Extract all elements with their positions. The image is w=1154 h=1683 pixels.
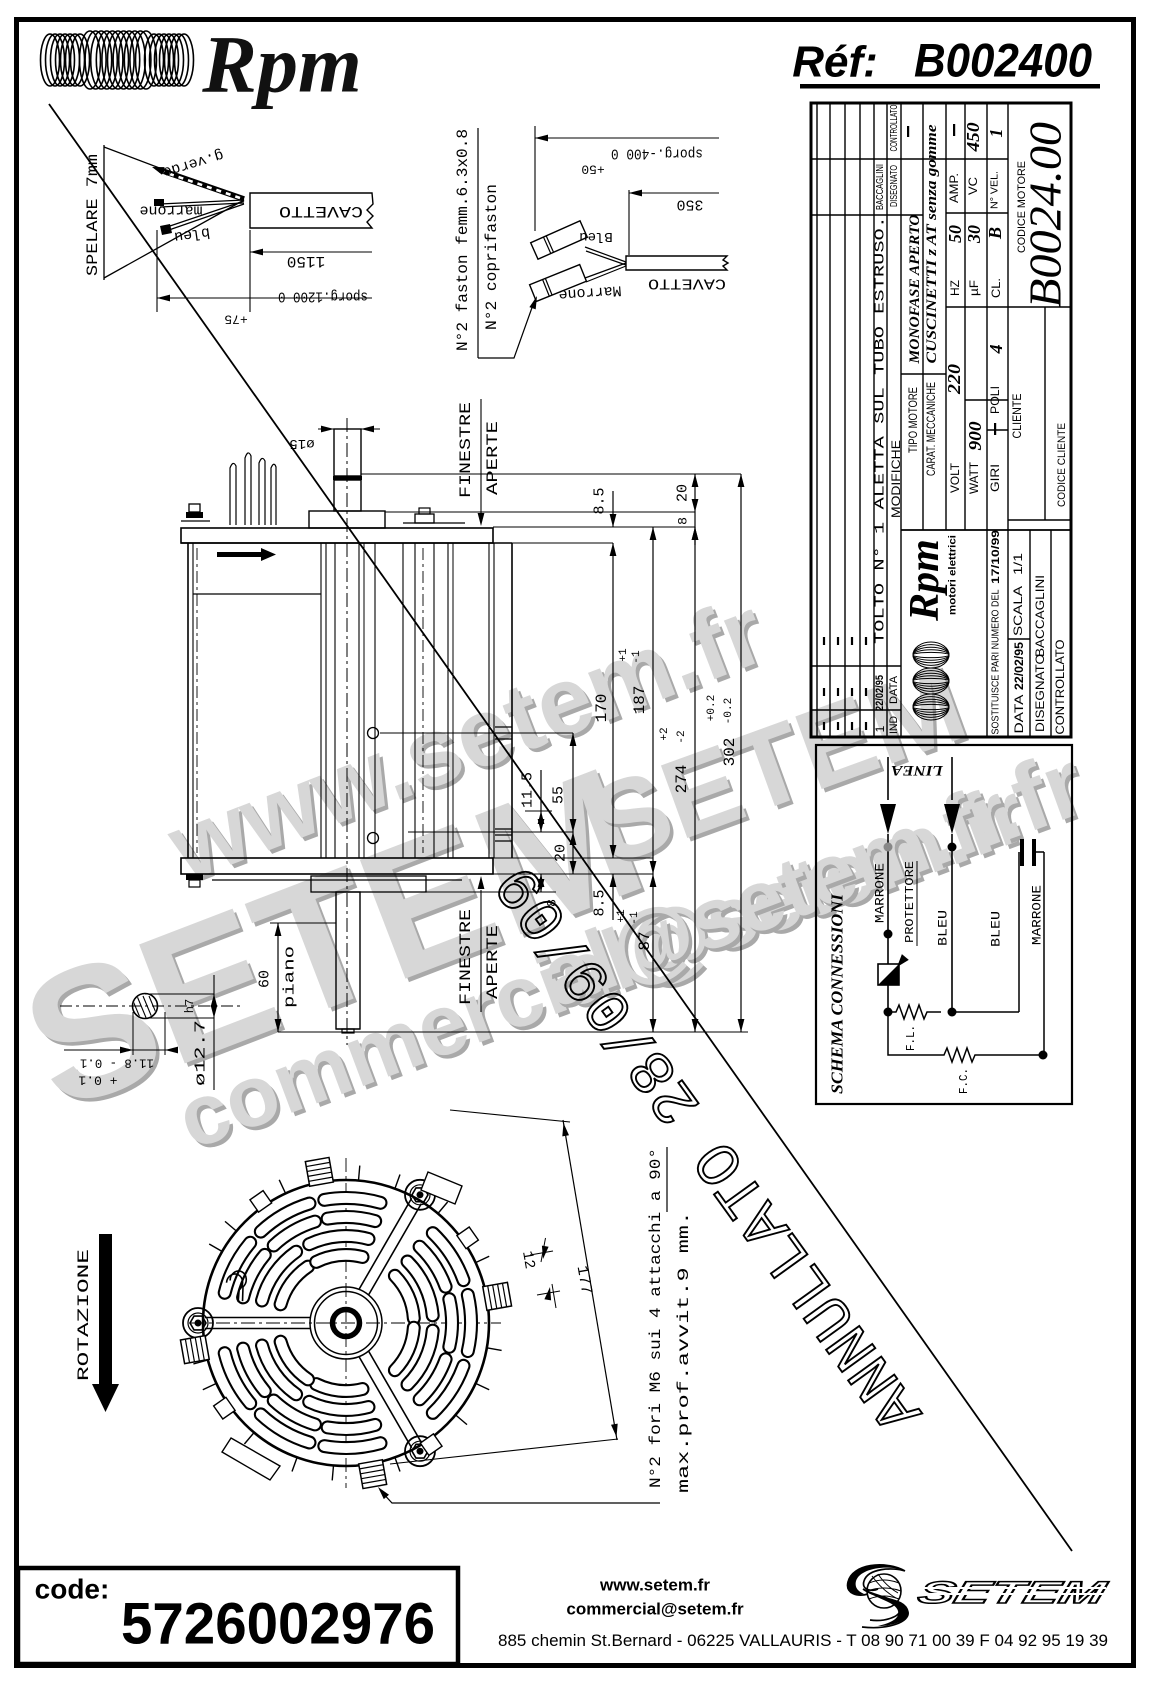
svg-text:+0.2: +0.2 — [706, 695, 718, 721]
svg-text:1150: 1150 — [287, 252, 325, 270]
svg-text:5726002976: 5726002976 — [121, 1592, 435, 1657]
svg-text:1/1: 1/1 — [1011, 553, 1025, 575]
svg-text:12: 12 — [518, 1250, 538, 1271]
svg-text:B: B — [985, 227, 1005, 240]
svg-text:POLI: POLI — [988, 386, 1002, 414]
svg-text:11.8 - 0.1: 11.8 - 0.1 — [80, 1056, 154, 1071]
svg-text:CAVETTO: CAVETTO — [648, 275, 726, 292]
svg-text:22/02/95: 22/02/95 — [1012, 642, 1026, 690]
svg-text:www.setem.fr: www.setem.fr — [599, 1576, 710, 1595]
svg-text:-0.2: -0.2 — [723, 698, 735, 724]
svg-text:11.5: 11.5 — [520, 772, 537, 808]
svg-text:N°2 coprifaston: N°2 coprifaston — [483, 184, 501, 330]
svg-text:302: 302 — [721, 738, 739, 767]
svg-text:VOLT: VOLT — [948, 462, 962, 493]
svg-text:DATA: DATA — [1012, 695, 1026, 734]
svg-text:N° VEL.: N° VEL. — [990, 171, 1001, 209]
svg-text:TIPO MOTORE: TIPO MOTORE — [906, 387, 920, 453]
svg-text:60: 60 — [257, 970, 274, 988]
svg-text:BLEU: BLEU — [936, 910, 951, 946]
svg-text:sporg.-400 0: sporg.-400 0 — [611, 145, 703, 162]
svg-text:SOSTITUISCE PARI NUMERO DEL: SOSTITUISCE PARI NUMERO DEL — [991, 589, 1002, 734]
svg-text:motori elettrici: motori elettrici — [948, 535, 959, 615]
svg-text:MONOFASE APERTO: MONOFASE APERTO — [907, 214, 923, 364]
svg-text:885 chemin St.Bernard - 0622: 885 chemin St.Bernard - 06225 VALLAURIS … — [498, 1632, 1108, 1650]
svg-text:274: 274 — [673, 765, 691, 794]
svg-text:BACCAGLINI: BACCAGLINI — [1033, 575, 1047, 657]
svg-text:ø15: ø15 — [289, 435, 314, 451]
svg-text:CLIENTE: CLIENTE — [1010, 394, 1024, 439]
svg-text:APERTE: APERTE — [484, 925, 502, 999]
svg-text:Réf:: Réf: — [792, 38, 878, 87]
svg-text:CL.: CL. — [989, 278, 1003, 298]
svg-text:+50: +50 — [581, 162, 604, 177]
svg-text:+1: +1 — [616, 909, 628, 923]
svg-text:MARRONE: MARRONE — [1030, 885, 1045, 945]
svg-text:CODICE CLIENTE: CODICE CLIENTE — [1056, 423, 1068, 507]
svg-text:450: 450 — [963, 123, 983, 153]
svg-text:IND: IND — [888, 716, 900, 734]
svg-text:1: 1 — [986, 129, 1006, 138]
svg-text:+2: +2 — [659, 727, 671, 740]
svg-text:DISEGNATO: DISEGNATO — [1033, 654, 1047, 732]
svg-text:-2: -2 — [676, 730, 688, 743]
svg-text:sporg.1200 0: sporg.1200 0 — [278, 288, 368, 305]
svg-text:BACCAGLINI: BACCAGLINI — [874, 164, 886, 210]
svg-text:FINESTRE: FINESTRE — [457, 909, 475, 1005]
svg-text:piano: piano — [282, 946, 299, 1008]
svg-text:ROTAZIONE: ROTAZIONE — [75, 1249, 93, 1381]
svg-text:20: 20 — [553, 844, 570, 862]
svg-text:code:: code: — [35, 1574, 110, 1605]
svg-text:ø12.7: ø12.7 — [193, 1020, 210, 1086]
svg-text:MARRONE: MARRONE — [873, 863, 888, 923]
svg-text:Bleu: Bleu — [579, 228, 613, 244]
svg-text:-1: -1 — [629, 911, 641, 925]
svg-text:50: 50 — [945, 225, 965, 243]
svg-text:SPELARE 7mm: SPELARE 7mm — [84, 154, 102, 276]
svg-text:BLEU: BLEU — [989, 911, 1004, 947]
svg-text:DISEGNATO: DISEGNATO — [888, 165, 900, 207]
svg-text:350: 350 — [676, 196, 703, 213]
svg-text:220: 220 — [944, 364, 964, 395]
svg-text:CAVETTO: CAVETTO — [279, 202, 363, 220]
svg-text:TOLTO N° 1 ALETTA SUL TUBO EST: TOLTO N° 1 ALETTA SUL TUBO ESTRUSO. — [874, 216, 889, 644]
svg-text:DATA: DATA — [888, 675, 900, 704]
svg-text:Rpm: Rpm — [902, 539, 948, 622]
svg-text:MODIFICHE: MODIFICHE — [889, 440, 903, 518]
svg-text:900: 900 — [965, 422, 985, 451]
svg-text:87: 87 — [636, 931, 654, 950]
svg-text:+ 0.1: + 0.1 — [78, 1073, 117, 1088]
svg-text:marrone: marrone — [139, 202, 202, 219]
svg-text:CONTROLLATO: CONTROLLATO — [1053, 640, 1067, 735]
svg-text:SCHEMA CONNESSIONI: SCHEMA CONNESSIONI — [828, 893, 847, 1094]
svg-text:B0024.00: B0024.00 — [1020, 122, 1071, 308]
svg-text:30: 30 — [964, 225, 984, 244]
svg-text:SETEM: SETEM — [914, 1574, 1111, 1609]
svg-text:h7: h7 — [183, 999, 197, 1013]
svg-text:17/10/99: 17/10/99 — [990, 530, 1002, 584]
svg-text:4: 4 — [986, 345, 1006, 355]
svg-text:CARAT. MECCANICHE: CARAT. MECCANICHE — [924, 382, 938, 476]
svg-text:8.5: 8.5 — [592, 487, 609, 514]
svg-text:1: 1 — [873, 725, 887, 732]
svg-text:N°2 faston femm.6.3x0.8: N°2 faston femm.6.3x0.8 — [454, 129, 472, 351]
svg-text:LINEA: LINEA — [891, 762, 944, 778]
svg-text:SCALA: SCALA — [1011, 586, 1025, 636]
svg-text:HZ: HZ — [948, 280, 962, 296]
svg-text:8.5: 8.5 — [592, 889, 609, 916]
svg-text:+1: +1 — [618, 648, 630, 662]
svg-text:FINESTRE: FINESTRE — [457, 402, 475, 498]
svg-text:55: 55 — [551, 786, 568, 804]
svg-text:GIRI: GIRI — [988, 464, 1002, 492]
svg-text:Rpm: Rpm — [201, 19, 361, 110]
svg-text:AMP.: AMP. — [947, 173, 961, 203]
svg-text:N°2 fori M6 sui 4 attacchi a 9: N°2 fori M6 sui 4 attacchi a 90° — [647, 1148, 665, 1488]
svg-text:WATT: WATT — [967, 461, 981, 494]
svg-text:CONTROLLATO: CONTROLLATO — [888, 105, 900, 152]
svg-text:commercial@setem.fr: commercial@setem.fr — [566, 1600, 744, 1619]
svg-text:F.C.: F.C. — [957, 1068, 971, 1094]
svg-text:170: 170 — [593, 694, 611, 723]
svg-text:CUSCINETTI z AT senza gomme: CUSCINETTI z AT senza gomme — [924, 124, 940, 363]
svg-text:µF: µF — [967, 280, 981, 296]
svg-text:22/02/95: 22/02/95 — [874, 675, 886, 711]
svg-text:VC: VC — [966, 177, 980, 195]
svg-text:-1: -1 — [631, 650, 643, 664]
svg-text:8: 8 — [676, 517, 691, 525]
svg-text:APERTE: APERTE — [484, 421, 502, 495]
svg-text:20: 20 — [675, 484, 692, 502]
svg-text:F.L.: F.L. — [904, 1025, 918, 1051]
svg-text:max.prof.avvit.9 mm.: max.prof.avvit.9 mm. — [675, 1211, 693, 1493]
svg-text:B002400: B002400 — [914, 34, 1092, 87]
svg-text:187: 187 — [631, 686, 649, 715]
svg-text:PROTETTORE: PROTETTORE — [903, 861, 917, 943]
svg-text:+75: +75 — [224, 312, 247, 327]
